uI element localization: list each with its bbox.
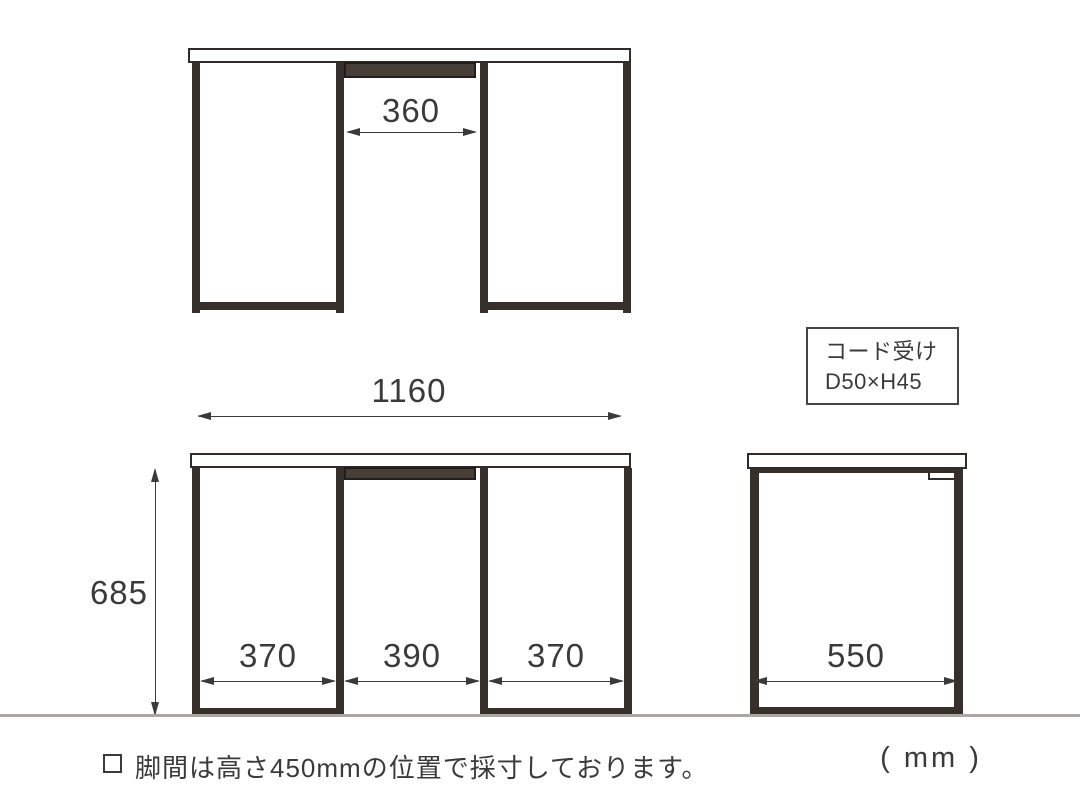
desk-leg — [336, 63, 344, 313]
dimension-label-360: 360 — [361, 92, 461, 130]
dimension-label-390: 390 — [362, 637, 462, 675]
desk-leg — [336, 468, 344, 717]
desk-leg — [623, 63, 631, 313]
dimension-label-370-left: 370 — [218, 637, 318, 675]
desk-top-panel — [747, 453, 967, 469]
callout-line2: D50×H45 — [825, 367, 957, 397]
dimension-arrow — [200, 677, 336, 686]
desk-leg — [480, 63, 488, 313]
desk-leg — [192, 468, 200, 717]
desk-leg — [480, 468, 488, 717]
leg-stretcher-bar — [480, 302, 631, 310]
leg-stretcher-bar — [192, 302, 344, 310]
dimension-label-1160: 1160 — [339, 372, 479, 410]
dimension-arrow — [344, 677, 480, 686]
desk-leg — [624, 468, 632, 717]
dimension-diagram: 360 1160 685 370 390 370 — [0, 0, 1080, 810]
square-marker-icon — [103, 754, 122, 773]
dimension-label-685: 685 — [58, 574, 148, 612]
dimension-arrow — [197, 412, 622, 421]
cord-holder-side-profile — [928, 471, 956, 480]
dimension-label-550: 550 — [806, 637, 906, 675]
desk-leg — [192, 63, 200, 313]
dimension-arrow — [753, 677, 958, 686]
desk-top-panel — [188, 48, 631, 63]
dimension-arrow-vertical — [151, 468, 160, 716]
desk-top-panel — [190, 453, 631, 468]
cord-holder-callout: コード受け D50×H45 — [806, 327, 959, 405]
floor-line — [0, 714, 1080, 717]
cord-holder-bar — [344, 62, 476, 78]
dimension-arrow — [488, 677, 624, 686]
dimension-arrow — [346, 128, 477, 137]
measurement-note: 脚間は高さ450mmの位置で採寸しております。 — [135, 748, 709, 785]
unit-label: ( mm ) — [866, 742, 996, 775]
cord-holder-bar — [344, 467, 476, 480]
dimension-label-370-right: 370 — [506, 637, 606, 675]
callout-line1: コード受け — [825, 337, 957, 367]
